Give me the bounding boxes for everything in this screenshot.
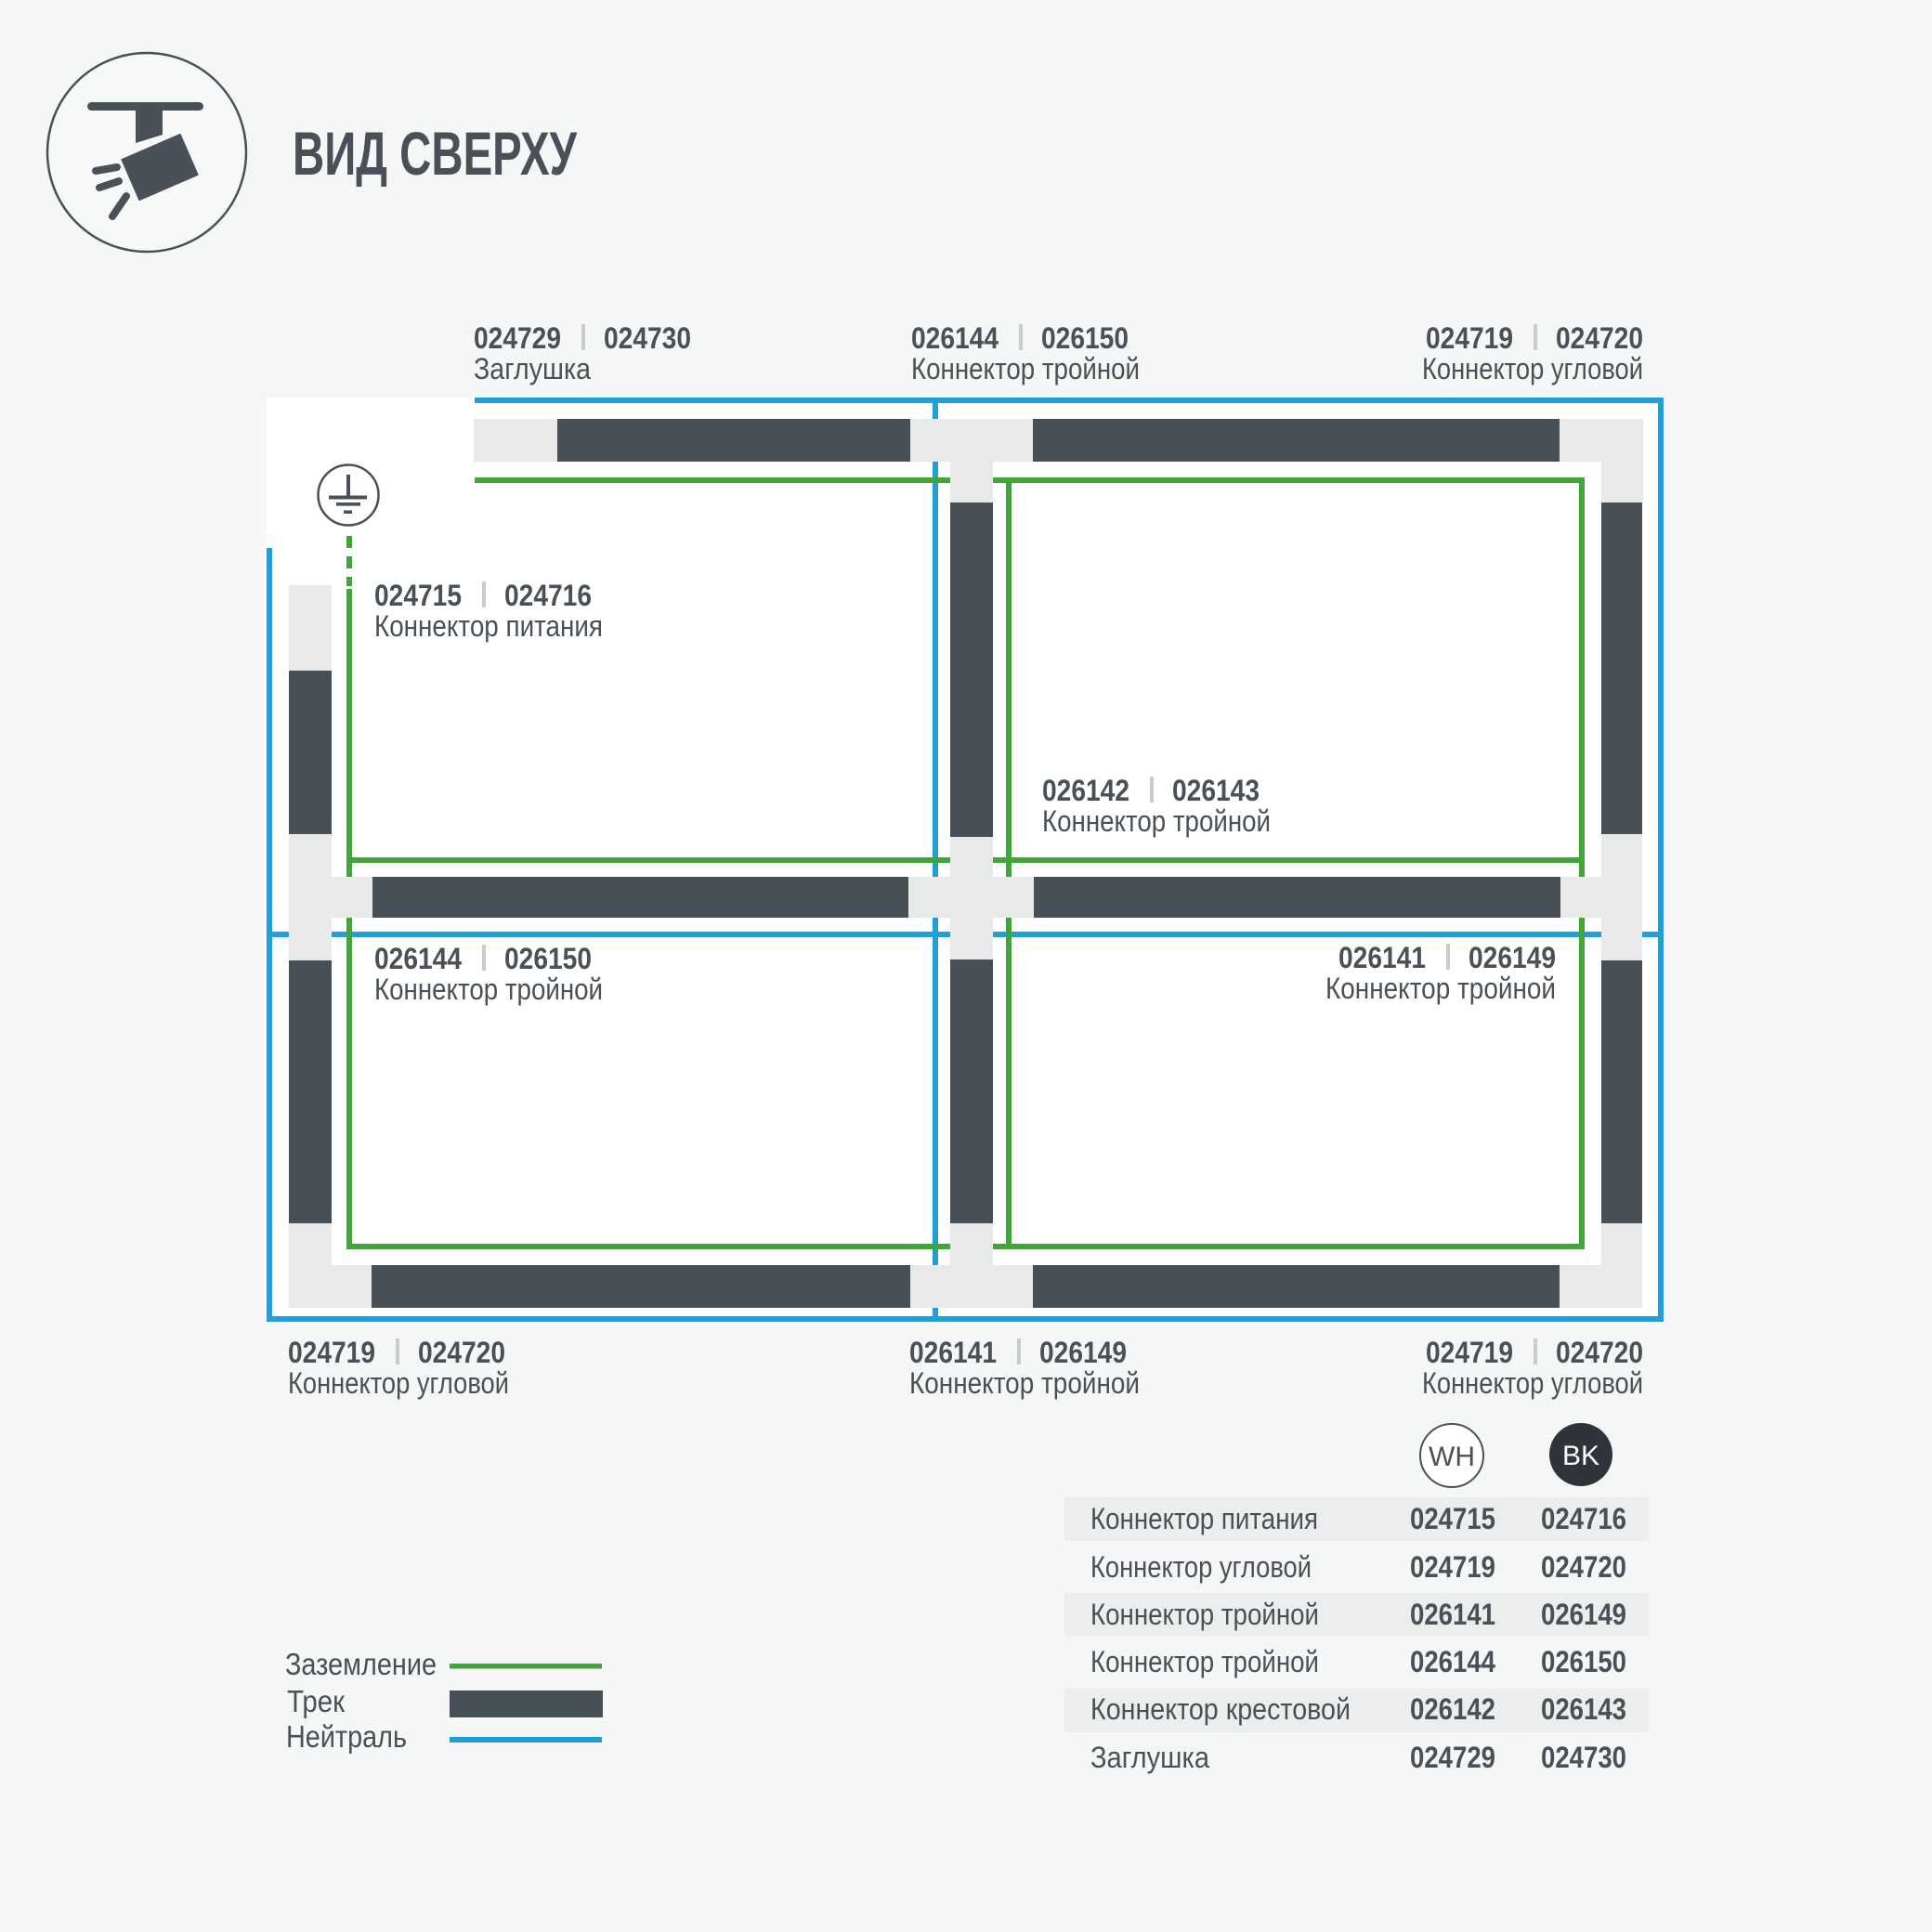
svg-text:Заглушка: Заглушка <box>474 352 591 385</box>
svg-text:026149: 026149 <box>1541 1598 1626 1631</box>
svg-text:Коннектор питания: Коннектор питания <box>374 609 603 643</box>
svg-text:026143: 026143 <box>1172 774 1260 807</box>
svg-text:024719: 024719 <box>288 1336 375 1369</box>
svg-text:026150: 026150 <box>1541 1645 1626 1678</box>
svg-text:Нейтраль: Нейтраль <box>286 1719 407 1754</box>
svg-text:026143: 026143 <box>1541 1692 1626 1726</box>
svg-text:026144: 026144 <box>911 321 999 355</box>
svg-text:Коннектор тройной: Коннектор тройной <box>374 973 603 1006</box>
svg-text:Трек: Трек <box>287 1684 345 1718</box>
svg-text:BK: BK <box>1562 1441 1599 1471</box>
svg-text:Коннектор тройной: Коннектор тройной <box>1090 1598 1319 1631</box>
svg-text:WH: WH <box>1429 1442 1475 1472</box>
svg-text:024720: 024720 <box>1556 1336 1643 1369</box>
svg-text:Коннектор тройной: Коннектор тройной <box>911 352 1140 385</box>
svg-text:ВИД СВЕРХУ: ВИД СВЕРХУ <box>293 119 578 188</box>
svg-text:024719: 024719 <box>1410 1550 1495 1584</box>
svg-text:024729: 024729 <box>474 321 561 355</box>
svg-text:024720: 024720 <box>1556 321 1643 355</box>
svg-text:024719: 024719 <box>1426 1336 1513 1369</box>
svg-text:024730: 024730 <box>1541 1741 1626 1774</box>
svg-text:024715: 024715 <box>1410 1502 1495 1535</box>
svg-text:024730: 024730 <box>604 321 691 355</box>
svg-text:Коннектор тройной: Коннектор тройной <box>1325 972 1556 1005</box>
svg-text:024729: 024729 <box>1410 1741 1495 1774</box>
svg-text:024716: 024716 <box>504 579 592 612</box>
svg-text:Коннектор угловой: Коннектор угловой <box>1422 1366 1643 1400</box>
svg-text:026141: 026141 <box>1338 941 1426 974</box>
svg-text:026141: 026141 <box>1410 1598 1495 1631</box>
svg-text:Коннектор угловой: Коннектор угловой <box>288 1366 509 1400</box>
svg-text:Заглушка: Заглушка <box>1090 1741 1209 1774</box>
svg-text:026150: 026150 <box>1041 321 1129 355</box>
svg-text:026141: 026141 <box>909 1336 997 1369</box>
svg-text:026142: 026142 <box>1410 1692 1495 1726</box>
svg-text:024716: 024716 <box>1541 1502 1626 1535</box>
svg-text:Заземление: Заземление <box>285 1647 437 1681</box>
svg-text:026142: 026142 <box>1042 774 1129 807</box>
svg-text:Коннектор питания: Коннектор питания <box>1090 1502 1318 1535</box>
svg-text:026149: 026149 <box>1039 1336 1127 1369</box>
svg-text:Коннектор угловой: Коннектор угловой <box>1422 352 1643 385</box>
svg-text:024719: 024719 <box>1426 321 1513 355</box>
svg-text:Коннектор тройной: Коннектор тройной <box>909 1366 1140 1400</box>
svg-text:024720: 024720 <box>418 1336 505 1369</box>
svg-text:024715: 024715 <box>374 579 462 612</box>
svg-text:026149: 026149 <box>1469 941 1556 974</box>
svg-text:026144: 026144 <box>374 942 462 975</box>
svg-text:Коннектор угловой: Коннектор угловой <box>1090 1550 1312 1584</box>
svg-text:Коннектор крестовой: Коннектор крестовой <box>1090 1692 1351 1726</box>
svg-text:026144: 026144 <box>1410 1645 1495 1678</box>
svg-text:Коннектор тройной: Коннектор тройной <box>1042 804 1271 838</box>
svg-text:026150: 026150 <box>504 942 592 975</box>
svg-text:Коннектор тройной: Коннектор тройной <box>1090 1645 1319 1678</box>
svg-text:024720: 024720 <box>1541 1550 1626 1584</box>
